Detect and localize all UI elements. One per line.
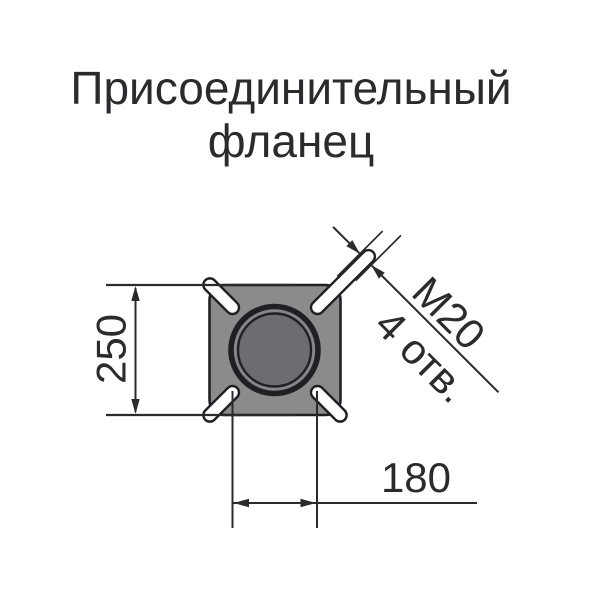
flange-body-group: [201, 247, 378, 424]
drawing-title-line1: Присоединительный: [70, 62, 511, 114]
bore-inner-circle: [238, 314, 311, 387]
dim-250-arrow-up-icon: [131, 286, 139, 301]
dim-250-value: 250: [88, 314, 135, 384]
dim-180-value: 180: [381, 454, 451, 501]
dim-250-arrow-down-icon: [131, 399, 139, 414]
drawing-title-line2: фланец: [208, 115, 375, 167]
flange-drawing-canvas: Присоединительный фланец 250: [0, 0, 600, 600]
dim-180-arrow-right-icon: [301, 499, 317, 507]
technical-drawing-page: Присоединительный фланец 250: [0, 0, 600, 600]
dim-180-arrow-left-icon: [234, 499, 250, 507]
bolt-slot-top-right: [308, 247, 377, 316]
